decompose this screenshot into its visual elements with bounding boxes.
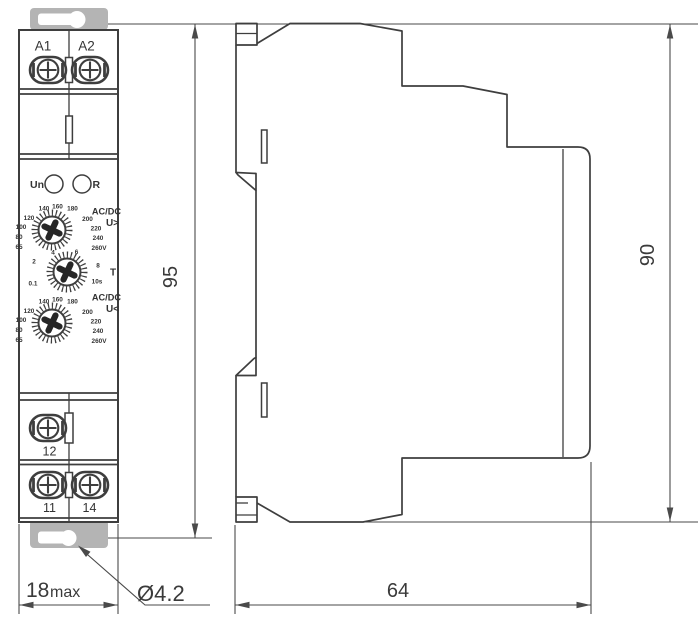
scale-tick: 8 (96, 263, 100, 270)
scale-tick: 140 (39, 298, 50, 305)
scale-tick: 65 (15, 337, 23, 344)
terminal-screw-12[interactable] (30, 415, 66, 441)
terminal-label-a1: A1 (35, 39, 52, 54)
scale-tick: 260V (92, 338, 108, 345)
scale-tick: 120 (24, 215, 35, 222)
scale-tick: 140 (39, 205, 50, 212)
scale-tick: 2 (32, 259, 36, 266)
terminal-screw-11[interactable] (30, 472, 66, 498)
dimension-side-depth: 64 (235, 580, 591, 608)
scale-tick: 100 (16, 224, 27, 231)
led-un-label: Un (30, 179, 44, 191)
scale-tick: 200 (82, 216, 93, 223)
side-top-tab (236, 24, 257, 46)
front-width-value: 18 (26, 579, 49, 602)
dimension-side-height: 90 (637, 24, 673, 522)
hole-diameter-value: Ø4.2 (137, 581, 185, 606)
led-un-indicator (45, 175, 63, 193)
scale-tick: 4 (51, 250, 55, 257)
side-slot-upper (262, 130, 268, 163)
led-r-label: R (93, 179, 101, 191)
acdc-label-upper: AC/DC (92, 207, 121, 217)
dimension-front-height: 95 (160, 24, 198, 538)
front-view: A1 A2 Un R 65 80 100 120 140 160 180 200… (15, 8, 121, 548)
terminal-label-11: 11 (43, 501, 56, 515)
acdc-label-lower: AC/DC (92, 293, 121, 303)
scale-tick: 160 (52, 296, 63, 303)
scale-tick: 80 (15, 327, 23, 334)
relay-dimension-drawing: A1 A2 Un R 65 80 100 120 140 160 180 200… (0, 0, 700, 630)
u-gt-label: U> (106, 218, 119, 229)
scale-tick: 100 (16, 317, 27, 324)
scale-tick: 180 (67, 205, 78, 212)
scale-tick: 0.1 (29, 281, 38, 288)
side-view (236, 24, 590, 523)
scale-tick: 160 (52, 203, 63, 210)
dimension-extension-lines (19, 24, 698, 614)
front-height-value: 95 (160, 266, 182, 288)
terminal-label-a2: A2 (78, 39, 95, 54)
din-hook-lower[interactable] (236, 358, 256, 376)
din-clip-bottom (30, 520, 108, 548)
side-depth-value: 64 (387, 580, 409, 602)
scale-tick: 6 (75, 249, 79, 256)
scale-tick: 240 (93, 235, 104, 242)
terminal-screw-a2[interactable] (72, 57, 108, 83)
time-label: T (110, 268, 116, 279)
side-slot-lower (262, 383, 268, 417)
dimension-hole-diameter: Ø4.2 (78, 546, 210, 607)
din-hook-upper (236, 173, 256, 191)
u-lt-label: U< (106, 304, 119, 315)
scale-tick: 10s (92, 279, 103, 286)
front-width-suffix: max (50, 584, 80, 601)
side-profile-outline (257, 24, 590, 523)
scale-tick: 200 (82, 309, 93, 316)
din-clip-top (30, 8, 108, 30)
scale-tick: 220 (91, 225, 102, 232)
side-height-value: 90 (637, 244, 659, 266)
scale-tick: 260V (92, 245, 108, 252)
terminal-label-12: 12 (43, 445, 57, 459)
scale-tick: 65 (15, 244, 23, 251)
terminal-screw-14[interactable] (72, 472, 108, 498)
scale-tick: 180 (67, 298, 78, 305)
technical-drawing-page: A1 A2 Un R 65 80 100 120 140 160 180 200… (0, 0, 700, 630)
scale-tick: 120 (24, 308, 35, 315)
mounting-hole (61, 530, 77, 546)
led-r-indicator (73, 175, 91, 193)
side-bottom-tab (236, 497, 257, 522)
dimension-front-width: 18 max (19, 579, 118, 608)
scale-tick: 220 (91, 318, 102, 325)
scale-tick: 80 (15, 234, 23, 241)
fuse-slot (66, 116, 73, 143)
terminal-screw-a1[interactable] (30, 57, 66, 83)
scale-tick: 240 (93, 328, 104, 335)
terminal-label-14: 14 (83, 501, 97, 515)
